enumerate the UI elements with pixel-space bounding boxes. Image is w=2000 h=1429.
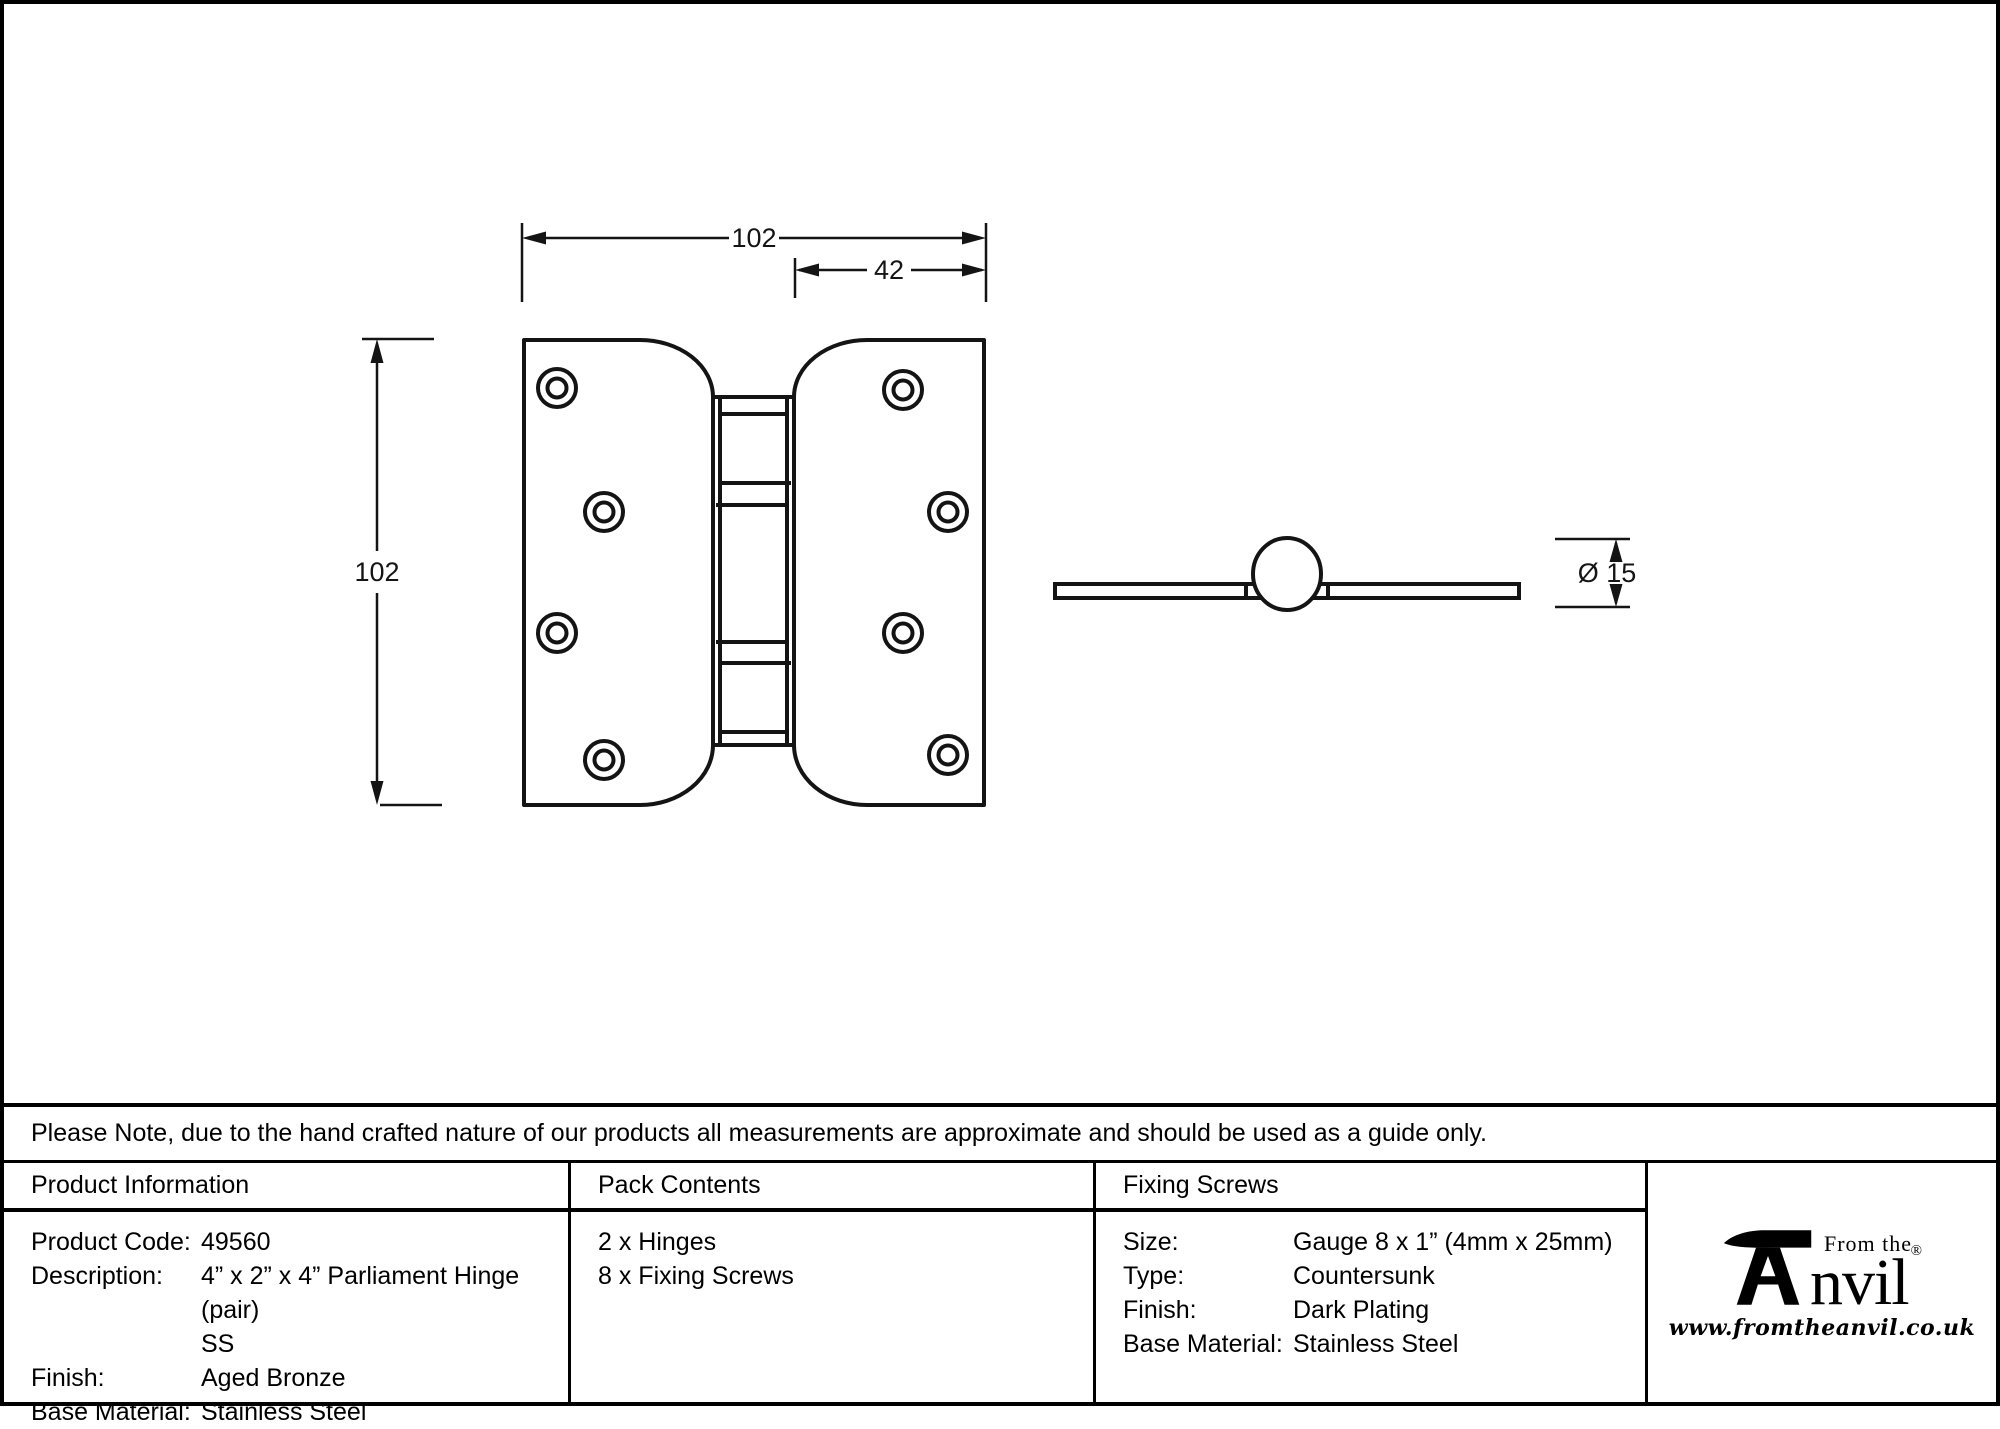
row-label: Type: [1123, 1259, 1293, 1293]
front-view [524, 340, 984, 805]
row-label: Product Code: [31, 1225, 201, 1259]
table-row: Description: 4” x 2” x 4” Parliament Hin… [31, 1259, 558, 1361]
fixing-screws-header: Fixing Screws [1096, 1163, 1645, 1212]
note-text: Please Note, due to the hand crafted nat… [31, 1119, 1487, 1148]
table-row: Product Code: 49560 [31, 1225, 558, 1259]
screw-hole [929, 493, 967, 531]
screw-hole-center [595, 751, 614, 770]
screw-hole [585, 493, 623, 531]
brand-logo: From the nvil ® www.fromtheanvil.co.uk [1648, 1163, 1996, 1402]
registered-trademark-symbol: ® [1911, 1243, 1922, 1260]
screw-hole-center [595, 503, 614, 522]
product-information-body: Product Code: 49560 Description: 4” x 2”… [4, 1212, 568, 1429]
row-value: Gauge 8 x 1” (4mm x 25mm) [1293, 1225, 1613, 1259]
dimensions [362, 223, 1630, 805]
row-value: Aged Bronze [201, 1361, 346, 1395]
dimension-label-inset: 42 [874, 255, 904, 285]
screw-hole [884, 614, 922, 652]
measurement-disclaimer-note: Please Note, due to the hand crafted nat… [4, 1103, 1996, 1163]
row-value: Stainless Steel [201, 1395, 366, 1429]
screw-hole [538, 369, 576, 407]
dimension-label-width: 102 [731, 223, 776, 253]
fixing-screws-body: Size: Gauge 8 x 1” (4mm x 25mm) Type: Co… [1096, 1212, 1645, 1361]
screw-hole-center [939, 503, 958, 522]
table-row: Size: Gauge 8 x 1” (4mm x 25mm) [1123, 1225, 1635, 1259]
pack-contents-body: 2 x Hinges 8 x Fixing Screws [571, 1212, 1093, 1293]
hinge-technical-drawing: 102 42 102 Ø 15 [0, 0, 2000, 1100]
screw-hole [929, 736, 967, 774]
pack-contents-column: Pack Contents 2 x Hinges 8 x Fixing Scre… [568, 1163, 1093, 1402]
row-label: Base Material: [31, 1395, 201, 1429]
knuckle-barrel [713, 397, 794, 745]
right-leaf-outline [794, 340, 984, 805]
spec-table: Product Information Product Code: 49560 … [4, 1163, 1996, 1402]
product-information-header: Product Information [4, 1163, 568, 1212]
row-value: Stainless Steel [1293, 1327, 1458, 1361]
row-label: Size: [1123, 1225, 1293, 1259]
table-row: Base Material: Stainless Steel [1123, 1327, 1635, 1361]
screw-hole-center [548, 379, 567, 398]
logo-brand-text: nvil [1810, 1257, 1909, 1308]
dimension-label-diameter: Ø 15 [1578, 558, 1637, 588]
dimension-label-height: 102 [354, 557, 399, 587]
table-row: Finish: Aged Bronze [31, 1361, 558, 1395]
table-row: Base Material: Stainless Steel [31, 1395, 558, 1429]
row-label: Finish: [31, 1361, 201, 1395]
pack-contents-header: Pack Contents [571, 1163, 1093, 1212]
table-row: Type: Countersunk [1123, 1259, 1635, 1293]
row-value: 4” x 2” x 4” Parliament Hinge (pair) SS [201, 1259, 558, 1361]
screw-hole-center [894, 381, 913, 400]
table-row: Finish: Dark Plating [1123, 1293, 1635, 1327]
product-information-column: Product Information Product Code: 49560 … [4, 1163, 568, 1402]
screw-hole-center [548, 624, 567, 643]
screw-hole-center [939, 746, 958, 765]
left-leaf-outline [524, 340, 713, 805]
screw-holes [538, 369, 967, 779]
side-view [1055, 538, 1519, 610]
logo-website-url: www.fromtheanvil.co.uk [1669, 1315, 1975, 1341]
row-value: Dark Plating [1293, 1293, 1429, 1327]
row-value: 49560 [201, 1225, 271, 1259]
screw-hole [585, 741, 623, 779]
row-label: Finish: [1123, 1293, 1293, 1327]
fixing-screws-column: Fixing Screws Size: Gauge 8 x 1” (4mm x … [1093, 1163, 1645, 1402]
row-label: Description: [31, 1259, 201, 1293]
row-label: Base Material: [1123, 1327, 1293, 1361]
pack-contents-item: 8 x Fixing Screws [598, 1259, 1083, 1293]
screw-hole [538, 614, 576, 652]
datasheet-page: { "drawing": { "front_view": { "width_la… [0, 0, 2000, 1406]
row-value: Countersunk [1293, 1259, 1435, 1293]
screw-hole [884, 371, 922, 409]
screw-hole-center [894, 624, 913, 643]
pack-contents-item: 2 x Hinges [598, 1225, 1083, 1259]
anvil-icon [1722, 1225, 1814, 1309]
brand-logo-cell: From the nvil ® www.fromtheanvil.co.uk [1645, 1163, 1996, 1402]
side-view-knuckle [1253, 538, 1321, 610]
